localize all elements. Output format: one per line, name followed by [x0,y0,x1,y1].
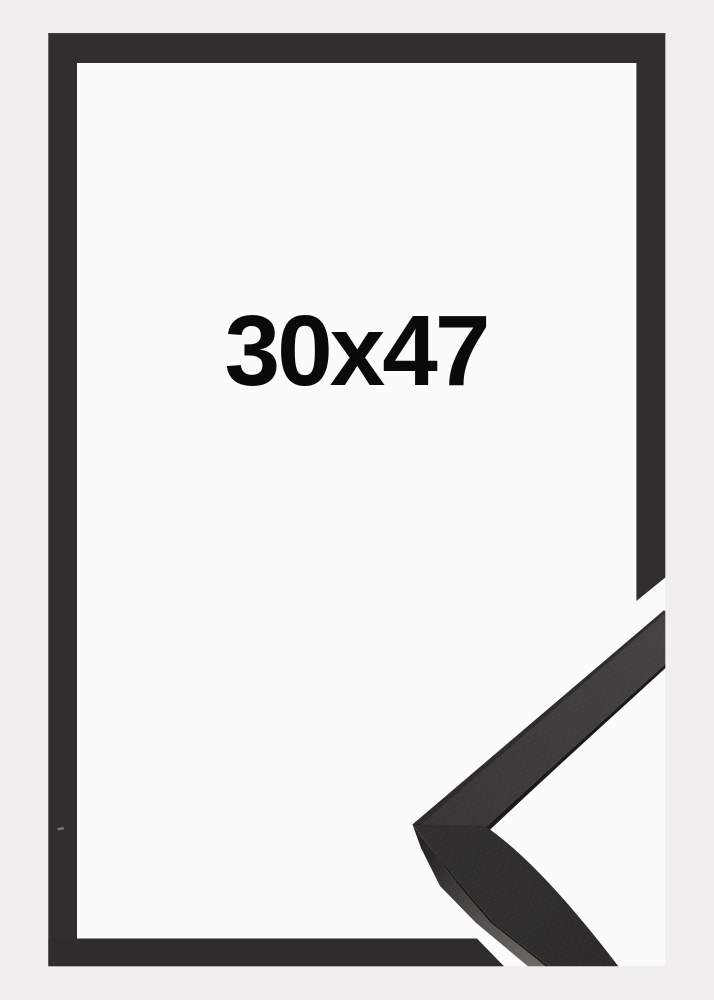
svg-text:30x47: 30x47 [224,295,487,407]
